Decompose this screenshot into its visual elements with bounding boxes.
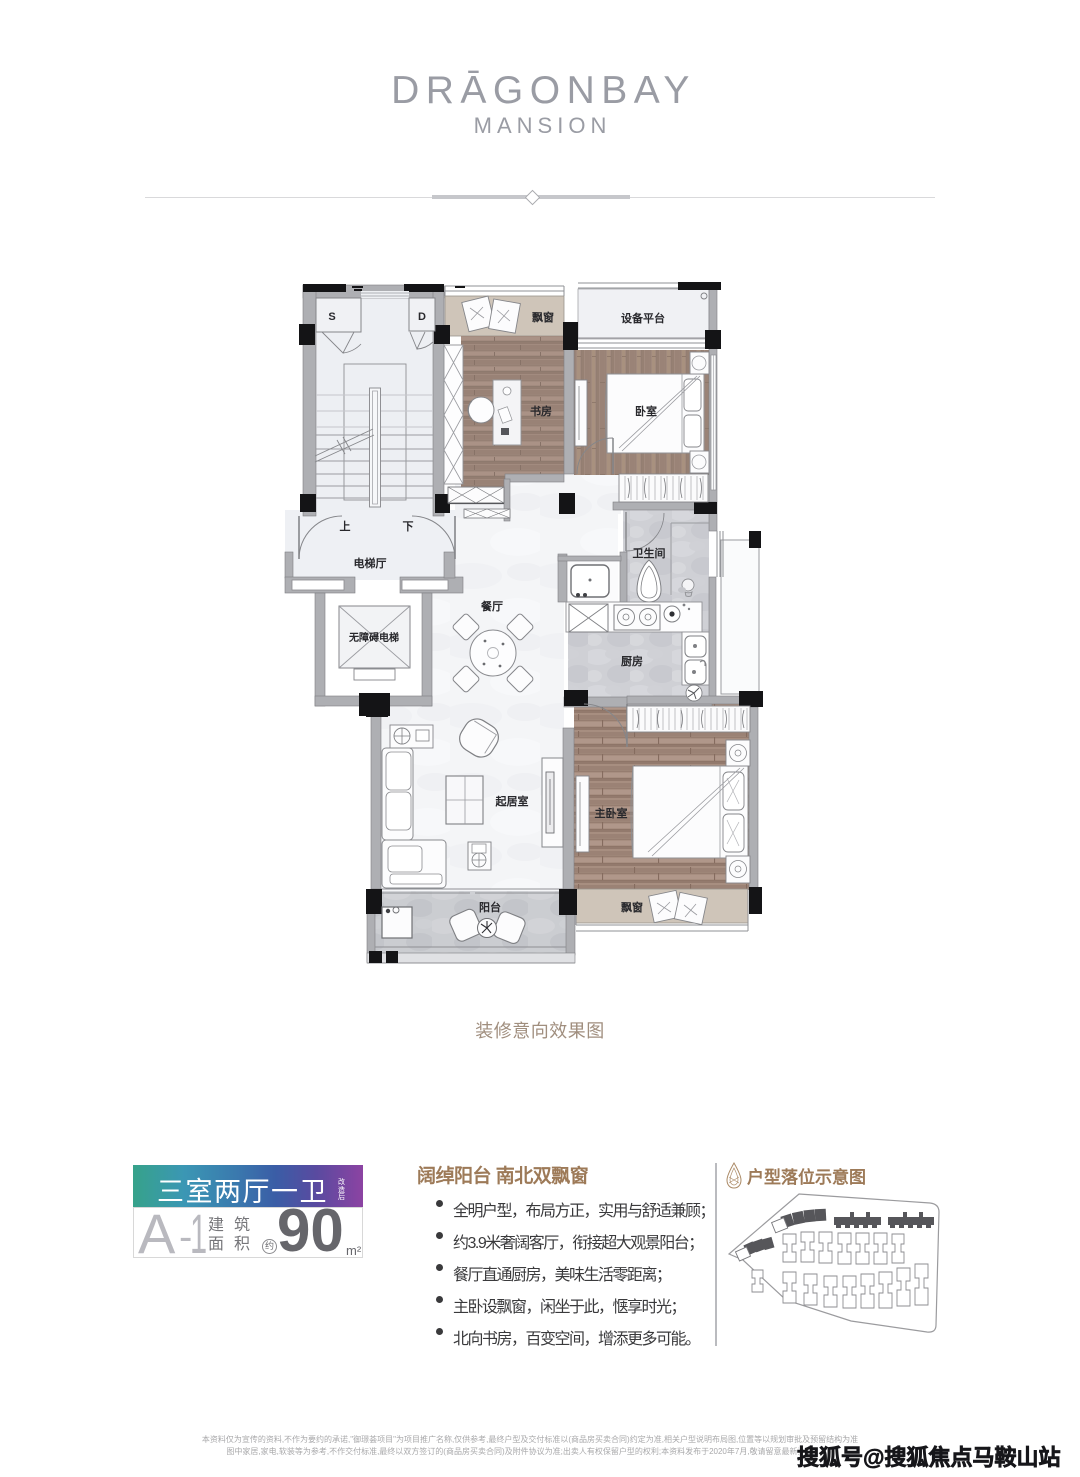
svg-text:无障碍电梯: 无障碍电梯 (348, 631, 399, 644)
svg-text:起居室: 起居室 (495, 794, 529, 808)
svg-text:飘窗: 飘窗 (621, 900, 643, 914)
svg-text:阳台: 阳台 (479, 900, 501, 914)
svg-text:餐厅: 餐厅 (480, 599, 503, 613)
svg-text:飘窗: 飘窗 (532, 310, 554, 324)
svg-text:设备平台: 设备平台 (621, 311, 665, 325)
svg-text:卧室: 卧室 (635, 404, 657, 418)
svg-text:电梯厅: 电梯厅 (354, 556, 387, 570)
svg-text:卫生间: 卫生间 (633, 546, 666, 560)
svg-text:书房: 书房 (530, 404, 552, 418)
svg-text:S: S (328, 311, 335, 323)
svg-text:D: D (418, 311, 426, 323)
svg-text:厨房: 厨房 (621, 654, 643, 668)
svg-text:下: 下 (403, 520, 414, 533)
svg-text:主卧室: 主卧室 (595, 806, 628, 820)
svg-text:上: 上 (340, 519, 351, 533)
